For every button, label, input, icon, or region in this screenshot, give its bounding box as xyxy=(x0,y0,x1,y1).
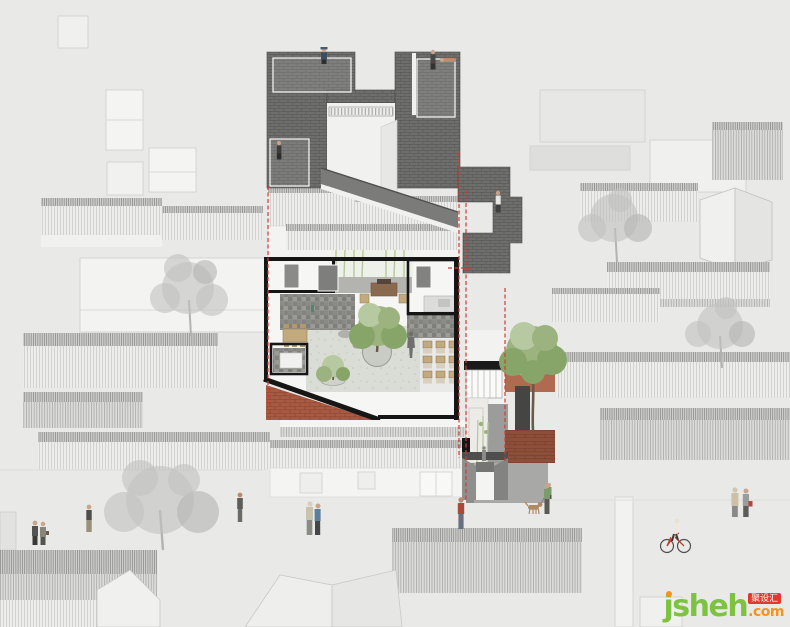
bamboo-verandah xyxy=(331,250,413,277)
dining-chair-rows xyxy=(423,341,458,384)
kitchen-counter xyxy=(424,296,456,312)
watermark-tld: .com xyxy=(748,605,784,619)
stone-wall-east xyxy=(407,312,455,338)
stone-wall-west xyxy=(280,294,355,330)
gabled-building-right xyxy=(700,188,772,270)
south-fascia xyxy=(280,420,470,427)
east-door-slot xyxy=(515,386,530,432)
east-brick-floor xyxy=(505,430,555,463)
watermark: jsheh 聚设汇 .com xyxy=(663,592,784,622)
plant-on-wall xyxy=(311,305,314,312)
red-bag xyxy=(749,501,753,507)
architectural-illustration: jsheh 聚设汇 .com xyxy=(0,0,790,627)
roof-lounger-right-top xyxy=(440,58,456,62)
watermark-badge: 聚设汇 xyxy=(748,593,781,604)
courtyard-plan-cutaway xyxy=(264,250,470,437)
roof-stander-right-top xyxy=(431,50,436,70)
illustration-canvas xyxy=(0,0,790,627)
roof-skylight-slot xyxy=(412,53,416,115)
south-eave-tiles xyxy=(280,427,470,437)
roof-climber-left xyxy=(277,141,282,160)
watermark-brand: jsheh xyxy=(663,592,747,622)
entry-lane-visitor xyxy=(482,446,486,461)
